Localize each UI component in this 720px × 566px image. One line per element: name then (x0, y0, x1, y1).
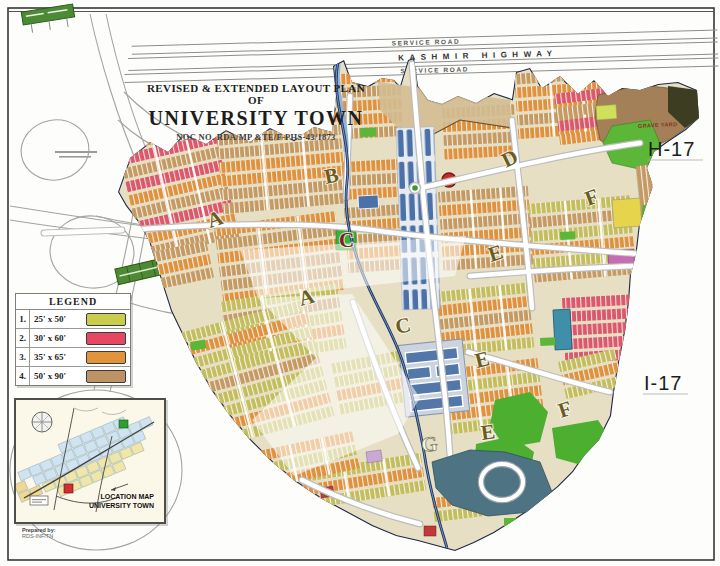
legend-plot-size: 50' x 90' (30, 371, 66, 381)
location-map: LOCATION MAP UNIVERSITY TOWN (14, 398, 166, 524)
legend-row: 1. 25' x 50' (16, 310, 130, 329)
legend-swatch (86, 313, 126, 326)
legend-plot-size: 35' x 65' (30, 352, 66, 362)
location-map-title: LOCATION MAP (100, 493, 154, 500)
legend-swatch (86, 370, 126, 383)
legend-swatch (86, 332, 126, 345)
sector-h17-label: H-17 (648, 138, 695, 160)
sector-i17-label: I-17 (644, 372, 682, 394)
location-map-subtitle: UNIVERSITY TOWN (89, 502, 154, 509)
legend-swatch (86, 351, 126, 364)
legend-plot-size: 30' x 60' (30, 333, 66, 343)
legend-row-number: 2. (16, 329, 30, 347)
interchange-caption-illegible (55, 151, 97, 158)
legend-plot-size: 25' x 50' (30, 314, 66, 324)
layout-plan-page: SERVICE ROAD KASHMIR HIGHWAY SERVICE ROA… (0, 0, 720, 566)
noc-number: NOC NO. RDA/MP &TE/F-PHS-43/1873 (138, 132, 374, 142)
plan-subtitle: REVISED & EXTENDED LAYOUT PLAN OF (138, 82, 374, 106)
prepared-by-value: RDS-INF/TN (22, 533, 56, 539)
title-block: REVISED & EXTENDED LAYOUT PLAN OF UNIVER… (138, 82, 374, 142)
plan-title: UNIVERSITY TOWN (138, 107, 374, 130)
sector-labels: H-17 I-17 (643, 138, 703, 394)
legend-row-number: 3. (16, 348, 30, 366)
highlight-plot-red (64, 484, 73, 493)
legend-row-number: 1. (16, 310, 30, 328)
highlight-plot-green (119, 420, 128, 428)
block-letter: C (339, 228, 354, 252)
legend-row: 4. 50' x 90' (16, 367, 130, 385)
block-letter: G (420, 431, 439, 457)
legend: LEGEND 1. 25' x 50' 2. 30' x 60' 3. 35' … (15, 293, 131, 386)
legend-row: 2. 30' x 60' (16, 329, 130, 348)
legend-row: 3. 35' x 65' (16, 348, 130, 367)
page-frame-inner-line (8, 11, 714, 12)
legend-title: LEGEND (16, 294, 130, 310)
location-map-drawing: LOCATION MAP UNIVERSITY TOWN (16, 400, 160, 518)
compass-icon (32, 412, 52, 432)
prepared-by: Prepared by: RDS-INF/TN (22, 527, 56, 539)
kashmir-highway: SERVICE ROAD KASHMIR HIGHWAY SERVICE ROA… (124, 30, 719, 83)
west-approach-road (44, 230, 122, 233)
legend-row-number: 4. (16, 367, 30, 385)
